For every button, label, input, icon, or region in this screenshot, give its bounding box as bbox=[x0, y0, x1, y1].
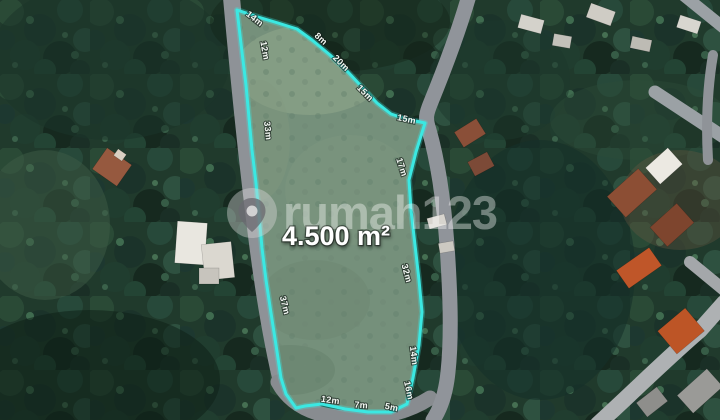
building-roof bbox=[199, 268, 219, 284]
area-label: 4.500 m² bbox=[282, 221, 390, 251]
satellite-listing-image: 14m 8m 20m 15m 15m 17m 32m 14m 16m 5m 7m… bbox=[0, 0, 720, 420]
measurement-label: 33m bbox=[262, 121, 274, 141]
map-canvas: 14m 8m 20m 15m 15m 17m 32m 14m 16m 5m 7m… bbox=[0, 0, 720, 420]
measurement-label: 7m bbox=[354, 400, 368, 411]
map-pin-hole bbox=[247, 206, 258, 217]
road-far-right bbox=[707, 55, 713, 160]
